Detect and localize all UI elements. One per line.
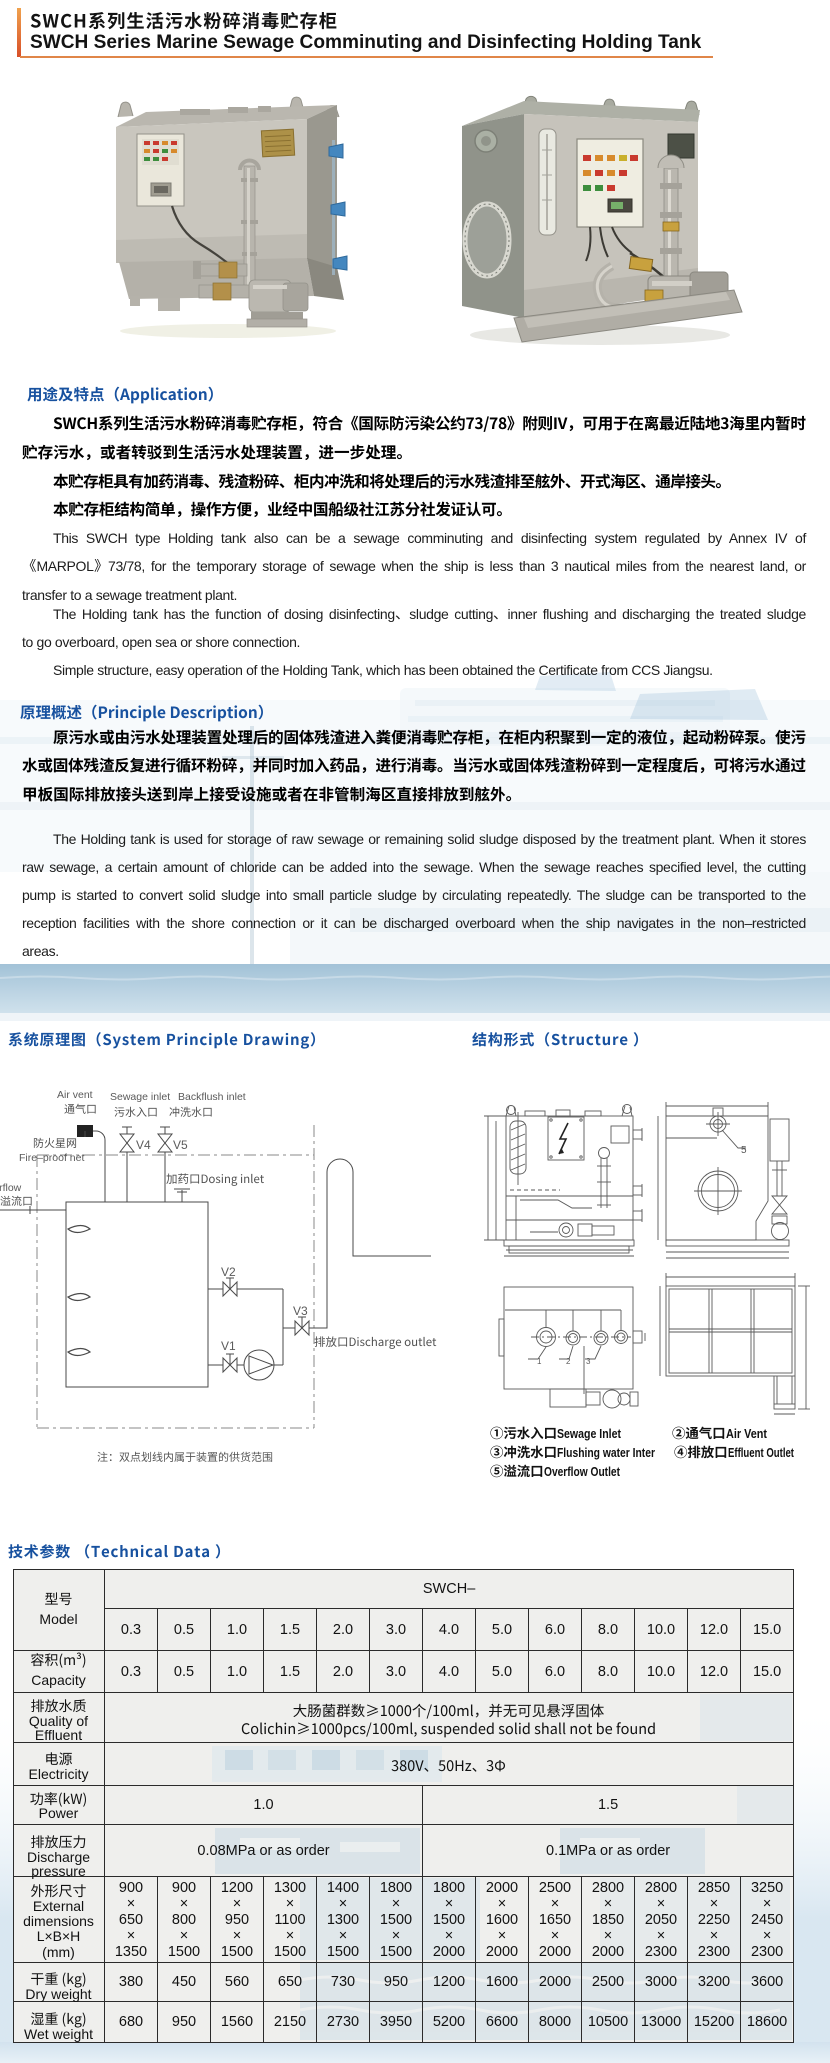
svg-text:dimensions: dimensions (23, 1913, 94, 1929)
svg-text:External: External (33, 1898, 84, 1914)
svg-text:Effluent: Effluent (35, 1727, 82, 1743)
svg-text:Flushing water Inter: Flushing water Inter (557, 1445, 655, 1460)
svg-text:(mm): (mm) (42, 1944, 75, 1960)
svg-text:Dry weight: Dry weight (25, 1986, 91, 2002)
svg-text:Capacity: Capacity (31, 1672, 85, 1688)
svg-text:Model: Model (39, 1611, 77, 1627)
svg-text:Electricity: Electricity (29, 1766, 89, 1782)
svg-text:Overflow Outlet: Overflow Outlet (544, 1464, 621, 1479)
svg-text:Air Vent: Air Vent (726, 1426, 768, 1441)
svg-text:Power: Power (39, 1805, 79, 1821)
svg-text:L×B×H: L×B×H (37, 1928, 81, 1944)
svg-text:Sewage Inlet: Sewage Inlet (557, 1426, 622, 1441)
svg-text:Wet weight: Wet weight (24, 2026, 93, 2042)
svg-text:pressure: pressure (31, 1863, 86, 1879)
svg-text:Effluent Outlet: Effluent Outlet (728, 1445, 794, 1460)
